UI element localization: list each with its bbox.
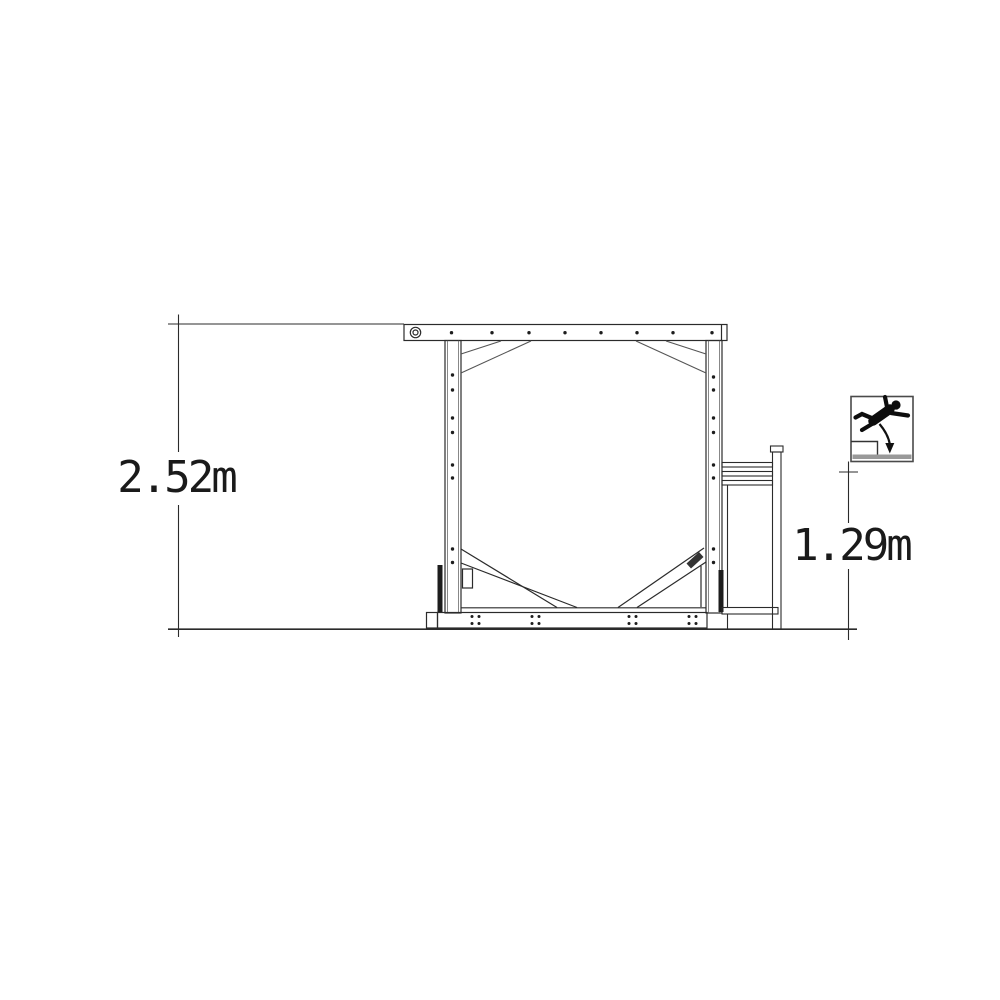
right-post-bolts: [712, 375, 715, 564]
base-beam-bolts: [471, 615, 698, 625]
icon-ground-strip: [853, 455, 912, 460]
ground-anchor-right: [719, 570, 724, 612]
corner-brace-right: [636, 341, 706, 373]
top-beam-bolts: [450, 331, 714, 334]
drawing-canvas: 2.52m 1.29m: [0, 0, 1000, 1000]
ring-bolt-icon: [413, 330, 418, 335]
dimension-label-fall-height: 1.29m: [785, 523, 917, 569]
ring-bolt-icon: [410, 327, 420, 337]
base-beam: [427, 608, 708, 628]
ground-anchor-left: [438, 565, 443, 612]
diagonal-brace-right: [618, 548, 706, 608]
dimension-label-overall-height: 2.52m: [110, 455, 242, 501]
fall-height-icon: [851, 397, 913, 462]
corner-brace-left: [461, 341, 531, 373]
left-post-bolts: [451, 373, 454, 564]
railing: [722, 446, 783, 629]
diagonal-brace-left: [461, 549, 577, 608]
